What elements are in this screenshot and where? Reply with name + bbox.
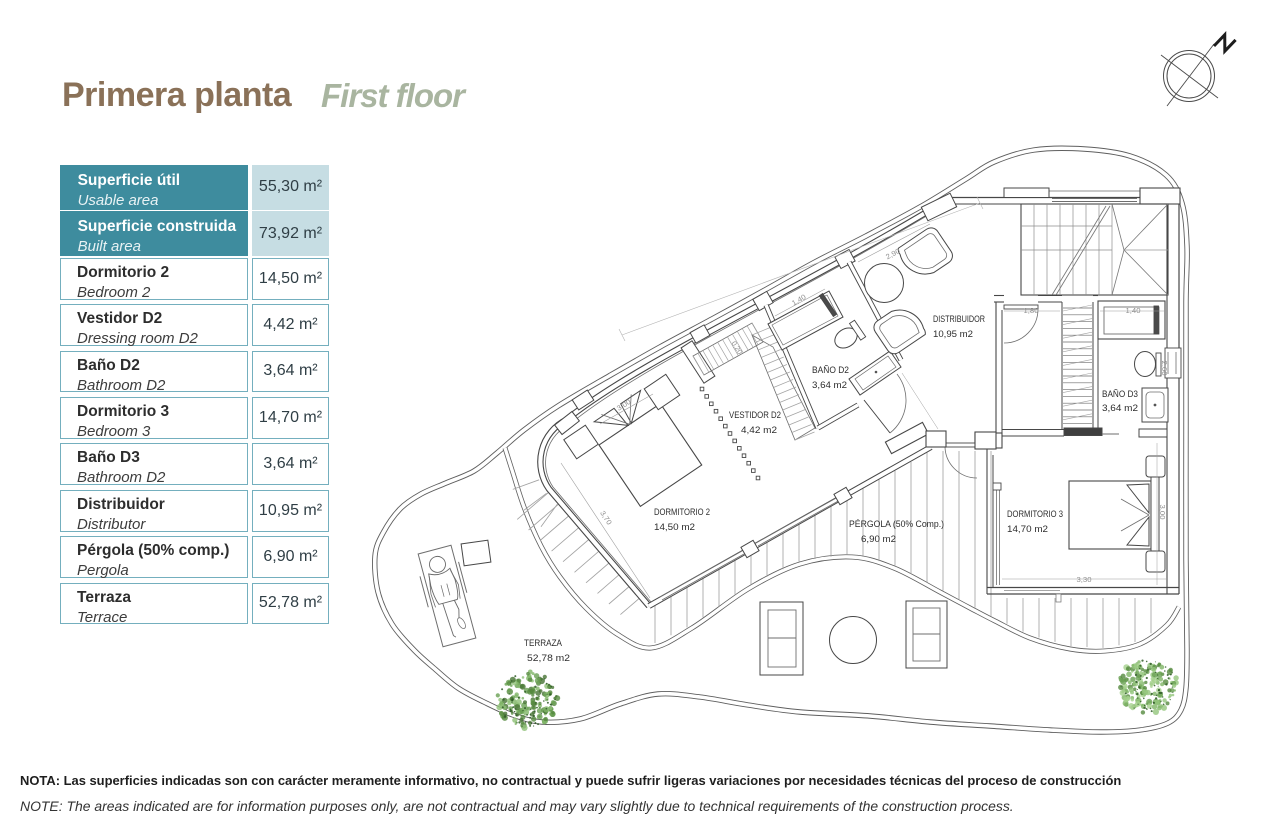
svg-text:14,50 m2: 14,50 m2 — [654, 521, 695, 532]
svg-text:VESTIDOR D2: VESTIDOR D2 — [729, 409, 781, 420]
svg-text:1,80: 1,80 — [1024, 306, 1039, 315]
svg-text:DORMITORIO 2: DORMITORIO 2 — [654, 506, 710, 517]
svg-text:0,20: 0,20 — [730, 340, 744, 356]
svg-text:3,00: 3,00 — [1158, 505, 1167, 520]
svg-text:3,64 m2: 3,64 m2 — [1102, 402, 1138, 413]
svg-text:4,42 m2: 4,42 m2 — [741, 424, 777, 435]
svg-text:BAÑO D3: BAÑO D3 — [1102, 388, 1138, 399]
svg-text:3,70: 3,70 — [598, 509, 614, 526]
svg-text:DORMITORIO 3: DORMITORIO 3 — [1007, 508, 1063, 519]
svg-text:3,64 m2: 3,64 m2 — [812, 379, 847, 390]
svg-text:1,40: 1,40 — [1126, 306, 1141, 315]
svg-text:3,30: 3,30 — [1077, 575, 1092, 584]
svg-text:2,60: 2,60 — [1160, 361, 1169, 376]
svg-text:DISTRIBUIDOR: DISTRIBUIDOR — [933, 313, 985, 324]
svg-text:BAÑO D2: BAÑO D2 — [812, 364, 849, 375]
svg-text:TERRAZA: TERRAZA — [524, 637, 563, 648]
svg-text:14,70 m2: 14,70 m2 — [1007, 523, 1048, 534]
svg-text:PÉRGOLA (50% Comp.): PÉRGOLA (50% Comp.) — [849, 518, 944, 529]
svg-text:52,78 m2: 52,78 m2 — [527, 652, 570, 663]
svg-text:6,90 m2: 6,90 m2 — [861, 533, 896, 544]
svg-text:10,95 m2: 10,95 m2 — [933, 328, 973, 339]
